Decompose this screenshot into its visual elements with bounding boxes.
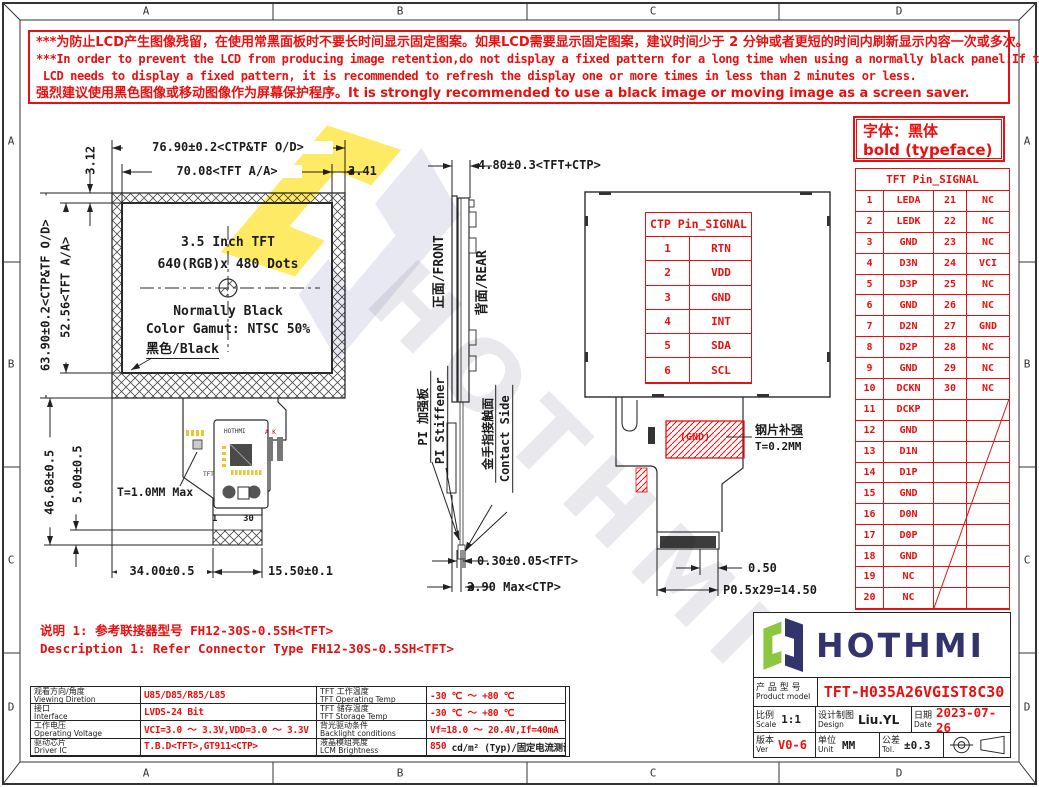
ctp-pin-signal: GND (690, 286, 752, 310)
panel-resolution-text: 640(RGB)x 480 Dots (128, 258, 328, 272)
tft-pin-signal: GND (884, 233, 934, 254)
version-row: 版本Ver V0-6 单位Unit MM 公差Tol. ±0.3 (754, 732, 1010, 757)
font-note-box: 字体：黑体 bold (typeface) (853, 116, 1005, 162)
tft-pin-number: 8 (856, 337, 884, 358)
frame-zone-label: A (1024, 135, 1031, 148)
tft-pin-number (934, 483, 967, 504)
tft-pin-number: 26 (934, 295, 967, 316)
tft-pin-number: 1 (856, 191, 884, 212)
dim-top-aa: 70.08<TFT A/A> (152, 165, 302, 178)
tft-pin-signal (967, 504, 1009, 525)
tft-pin-number: 2 (856, 212, 884, 233)
warning-line-mixed: 强烈建议使用黑色图像或移动图像作为屏幕保护程序。It is strongly r… (36, 85, 1002, 102)
tft-pin-signal: GND (884, 546, 934, 567)
warning-line-en-2: LCD needs to display a fixed pattern, it… (36, 68, 1002, 85)
tft-pin-signal: VCI (967, 254, 1009, 275)
dim-top-od: 76.90±0.2<CTP&TF O/D> (123, 141, 333, 154)
tft-pin-number: 29 (934, 358, 967, 379)
frame-zone-label: B (1024, 358, 1031, 371)
tft-pin-number: 7 (856, 316, 884, 337)
tft-pin-signal: LEDA (884, 191, 934, 212)
tft-pin-signal (967, 588, 1009, 609)
dim-finger-length: 5.00±0.5 (72, 434, 85, 514)
warning-line-zh-1: ***为防止LCD产生图像残留，在使用常黑面板时不要长时间显示固定图案。如果LC… (36, 34, 1002, 51)
tft-pin-signal (967, 546, 1009, 567)
side-contact-label-en: Contact Side (499, 385, 513, 493)
ctp-pin-number: 4 (646, 310, 690, 334)
tft-pin-number (934, 567, 967, 588)
tft-pin-signal: NC (967, 379, 1009, 400)
dim-left-od: 63.90±0.2<CTP&TF O/D> (40, 195, 53, 395)
tft-pin-number: 30 (934, 379, 967, 400)
side-rear-label: 背面/REAR (476, 238, 490, 328)
ctp-pin-signal: VDD (690, 261, 752, 285)
tft-pin-number (934, 463, 967, 484)
brand-name: HOTHMI (816, 626, 985, 665)
tft-pin-signal: NC (967, 275, 1009, 296)
warning-line-en-1: ***In order to prevent the LCD from prod… (36, 51, 1002, 68)
tft-pin-signal: D2N (884, 316, 934, 337)
note-line-zh: 说明 1: 参考联接器型号 FH12-30S-0.5SH<TFT> (40, 620, 333, 639)
side-pi-label-en: PI Stiffener (434, 366, 448, 476)
frame-zone-label: A (8, 135, 15, 148)
spec-value: U85/D85/R85/L85 (141, 687, 317, 704)
side-front-label: 正面/FRONT (433, 222, 447, 322)
ctp-pin-signal: SCL (690, 358, 752, 382)
spec-value: -30 ℃ ～ +80 ℃ (427, 687, 566, 704)
ver-value: V0-6 (778, 738, 807, 752)
product-model: TFT-H035A26VGIST8C30 (824, 683, 1005, 701)
spec-label: 驱动芯片Driver IC (31, 739, 141, 756)
unit-value: MM (842, 739, 855, 752)
tft-pin-table: TFT Pin_SIGNAL 1LEDA21NC2LEDK22NC3GND23N… (855, 168, 1010, 610)
tft-pin-signal: NC (967, 191, 1009, 212)
frame-zone-label: A (143, 767, 150, 780)
tft-pin-signal (967, 421, 1009, 442)
tft-pin-number: 13 (856, 442, 884, 463)
frame-zone-label: C (650, 5, 657, 18)
tft-pin-number: 14 (856, 463, 884, 484)
spec-value: T.B.D<TFT>,GT911<CTP> (141, 739, 317, 756)
note-line-en: Description 1: Refer Connector Type FH12… (40, 641, 454, 656)
frame-zone-label: B (397, 5, 404, 18)
ctp-pin-signal: SDA (690, 334, 752, 358)
date-value: 2023-07-26 (936, 707, 1010, 732)
tft-pin-number: 21 (934, 191, 967, 212)
tft-pin-number: 12 (856, 421, 884, 442)
spec-label: 液晶模组亮度LCM Brightness (317, 739, 427, 756)
tft-pin-signal: GND (884, 483, 934, 504)
hothmi-logo-icon (762, 618, 808, 672)
ctp-pin-table: CTP Pin_SIGNAL 1RTN2VDD3GND4INT5SDA6SCL (645, 212, 752, 384)
spec-label: 接口Interface (31, 704, 141, 721)
tft-pin-signal: GND (884, 295, 934, 316)
connector-pin-1: 1 (212, 515, 217, 524)
frame-zone-label: A (143, 5, 150, 18)
tft-pin-number: 18 (856, 546, 884, 567)
tft-pin-number: 20 (856, 588, 884, 609)
steel-thickness-label: T=0.2MM (755, 441, 801, 453)
tft-pin-signal: D3N (884, 254, 934, 275)
spec-label: TFT 工作温度TFT Operating Temp (317, 687, 427, 704)
tft-pin-signal (967, 442, 1009, 463)
spec-value: VCI=3.0 ～ 3.3V,VDD=3.0 ～ 3.3V (141, 721, 317, 738)
tft-pin-signal: NC (967, 358, 1009, 379)
date-label-en: Date (914, 721, 932, 729)
spec-label: 背光驱动条件Backlight conditions (317, 721, 427, 738)
spec-label: 观看方向/角度Viewing Diretion (31, 687, 141, 704)
tft-pin-signal: LEDK (884, 212, 934, 233)
spec-table: 观看方向/角度Viewing DiretionU85/D85/R85/L85TF… (30, 686, 570, 757)
tft-pin-number (934, 546, 967, 567)
scale-label-zh: 比例 (756, 711, 776, 721)
tft-pin-signal: NC (884, 588, 934, 609)
designer-name: Liu.YL (858, 713, 899, 727)
frame-zone-label: D (1024, 701, 1031, 714)
tft-pin-signal (967, 525, 1009, 546)
scale-label-en: Scale (756, 721, 776, 729)
ctp-pin-number: 5 (646, 334, 690, 358)
tft-pin-number (934, 525, 967, 546)
title-block: HOTHMI 产 品 型 号 Product model TFT-H035A26… (753, 612, 1011, 758)
tft-pin-signal: D1P (884, 463, 934, 484)
ctp-pin-number: 1 (646, 237, 690, 261)
tft-pin-signal: NC (967, 295, 1009, 316)
tft-pin-signal: GND (884, 358, 934, 379)
tft-pin-signal: D1N (884, 442, 934, 463)
ver-label-en: Ver (756, 746, 774, 754)
side-gold-label-zh: 金手指接触面 (482, 385, 496, 483)
tft-pin-number: 23 (934, 233, 967, 254)
brand-row: HOTHMI (754, 613, 1010, 677)
dim-side-total: 4.80±0.3<TFT+CTP> (478, 159, 601, 172)
design-label-en: Design (818, 721, 854, 729)
unit-label-en: Unit (818, 746, 836, 754)
tft-pin-signal: NC (967, 337, 1009, 358)
tft-pin-signal (967, 567, 1009, 588)
tft-pin-number: 6 (856, 295, 884, 316)
font-note-en: bold (typeface) (863, 141, 995, 160)
tft-pin-signal: D0N (884, 504, 934, 525)
tft-pin-number: 15 (856, 483, 884, 504)
frame-zone-label: B (8, 358, 15, 371)
tol-label-en: Tol. (882, 746, 900, 754)
dim-bottom-right: 15.50±0.1 (268, 565, 333, 578)
dim-fpc-height: 46.68±0.5 (44, 437, 57, 527)
dim-right-offset: 3.41 (348, 165, 377, 178)
tft-pin-signal: D0P (884, 525, 934, 546)
ctp-pin-table-title: CTP Pin_SIGNAL (646, 213, 751, 237)
frame-zone-label: C (8, 554, 15, 567)
tft-pin-signal (967, 463, 1009, 484)
dim-top-offset: 3.12 (85, 140, 98, 180)
ctp-pin-signal: INT (690, 310, 752, 334)
tft-pin-number: 9 (856, 358, 884, 379)
dim-left-aa: 52.56<TFT A/A> (60, 212, 73, 362)
dim-rear-pitch-total: P0.5x29=14.50 (723, 584, 817, 597)
spec-label: TFT 储存温度TFT Storage Temp (317, 704, 427, 721)
tft-pin-number: 3 (856, 233, 884, 254)
product-label-en: Product model (756, 693, 810, 701)
tft-pin-number: 19 (856, 567, 884, 588)
spec-label: 工作电压Operating Voltage (31, 721, 141, 738)
tft-pin-number: 25 (934, 275, 967, 296)
tft-pin-number: 24 (934, 254, 967, 275)
tft-pin-number: 16 (856, 504, 884, 525)
tft-pin-signal: D3P (884, 275, 934, 296)
ctp-pin-number: 6 (646, 358, 690, 382)
frame-zone-label: D (896, 767, 903, 780)
gnd-label: (GND) (680, 433, 710, 444)
panel-mode-text: Normally Black (138, 305, 318, 319)
scale-row: 比例Scale 1:1 设计制图Design Liu.YL 日期Date 202… (754, 706, 1010, 732)
dim-side-tft: 0.30±0.05<TFT> (477, 555, 578, 568)
tol-value: ±0.3 (904, 739, 931, 752)
frame-zone-label: D (8, 701, 15, 714)
tft-pin-number (934, 421, 967, 442)
tft-pin-number: 28 (934, 337, 967, 358)
tft-pin-signal: DCKP (884, 400, 934, 421)
tft-pin-number: 22 (934, 212, 967, 233)
panel-size-text: 3.5 Inch TFT (138, 236, 318, 250)
tft-pin-number: 4 (856, 254, 884, 275)
tft-pin-signal: GND (884, 421, 934, 442)
frame-zone-label: D (896, 5, 903, 18)
tft-pin-signal: NC (884, 567, 934, 588)
spec-value: Vf=18.0 ～ 20.4V,If=40mA (427, 721, 566, 738)
warning-box: ***为防止LCD产生图像残留，在使用常黑面板时不要长时间显示固定图案。如果LC… (28, 30, 1010, 104)
tft-pin-signal (967, 483, 1009, 504)
tft-pin-number (934, 504, 967, 525)
dim-bottom-left: 34.00±0.5 (117, 565, 207, 578)
tft-pin-table-title: TFT Pin_SIGNAL (856, 169, 1009, 191)
font-note-zh: 字体：黑体 (863, 122, 995, 141)
tft-pin-number: 17 (856, 525, 884, 546)
tft-pin-number: 11 (856, 400, 884, 421)
connector-pin-30: 30 (243, 515, 254, 524)
scale-value: 1:1 (781, 713, 801, 726)
tft-pin-signal: DCKN (884, 379, 934, 400)
frame-zone-label: C (650, 767, 657, 780)
spec-value: -30 ℃ ～ +80 ℃ (427, 704, 566, 721)
spec-value: LVDS-24 Bit (141, 704, 317, 721)
tft-pin-number (934, 442, 967, 463)
dim-rear-pitch: 0.50 (748, 562, 777, 575)
ctp-pin-number: 3 (646, 286, 690, 310)
date-label-zh: 日期 (914, 711, 932, 721)
panel-black-label: 黑色/Black (146, 343, 219, 359)
frame-zone-label: B (397, 767, 404, 780)
tft-pin-number: 10 (856, 379, 884, 400)
frame-zone-label: C (1024, 554, 1031, 567)
ctp-pin-number: 2 (646, 261, 690, 285)
tft-pin-signal: NC (967, 212, 1009, 233)
spec-value: 850 cd/m² (Typ)/固定电流测试 (427, 739, 566, 756)
projection-symbol-icon (948, 734, 1006, 756)
ctp-pin-signal: RTN (690, 237, 752, 261)
tft-pin-number (934, 588, 967, 609)
tft-pin-number: 27 (934, 316, 967, 337)
label-thickness: T=1.0MM Max (117, 486, 193, 498)
tft-pin-signal: D2P (884, 337, 934, 358)
tft-pin-number (934, 400, 967, 421)
tft-pin-signal: NC (967, 233, 1009, 254)
dim-side-ctp: 2.90 Max<CTP> (467, 581, 561, 594)
product-row: 产 品 型 号 Product model TFT-H035A26VGIST8C… (754, 677, 1010, 706)
tft-pin-signal: GND (967, 316, 1009, 337)
side-pi-label-zh: PI 加强板 (417, 371, 431, 463)
design-label-zh: 设计制图 (818, 711, 854, 721)
tft-pin-signal (967, 400, 1009, 421)
steel-reinforce-label: 钢片补强 (755, 424, 803, 438)
panel-gamut-text: Color Gamut: NTSC 50% (118, 323, 338, 337)
tft-pin-number: 5 (856, 275, 884, 296)
datasheet-page: HOTHMI A K TFT (0, 0, 1039, 787)
